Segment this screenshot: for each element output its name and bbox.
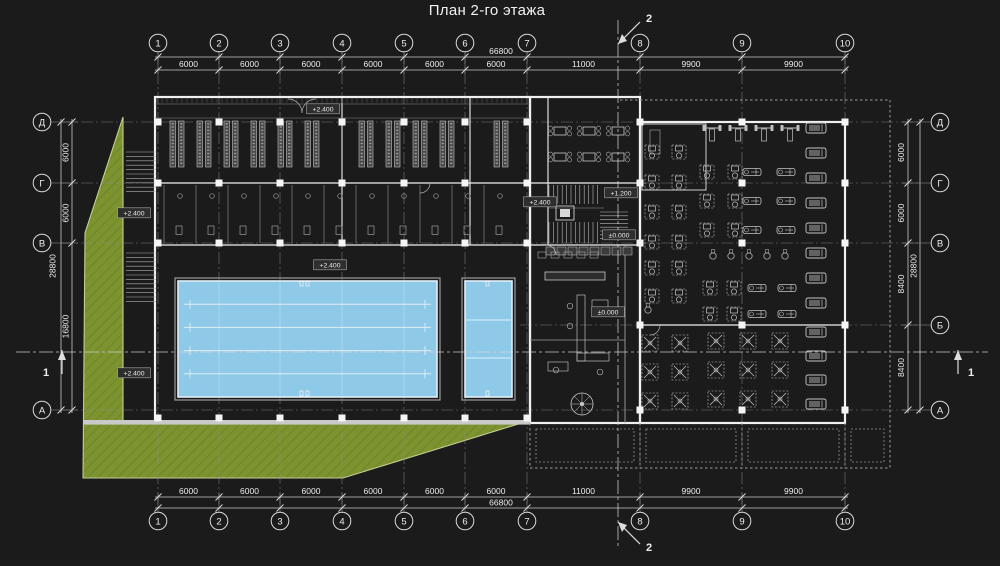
locker [590, 247, 599, 255]
equip [645, 205, 659, 219]
column [216, 240, 223, 247]
equip [676, 243, 681, 248]
equip [731, 315, 736, 320]
equip [755, 125, 758, 131]
column [277, 240, 284, 247]
column [524, 180, 531, 187]
equip [745, 228, 749, 232]
column [739, 119, 746, 126]
equip [809, 225, 820, 231]
grid-bubble-label: 9 [739, 517, 744, 528]
cafe-chair [577, 126, 581, 130]
equip [728, 165, 742, 179]
chair [567, 303, 573, 309]
grid-bubble-label: Г [39, 178, 44, 189]
cafe-table [583, 127, 595, 135]
terrace-slab [646, 429, 736, 462]
equip [649, 236, 656, 241]
column [842, 180, 849, 187]
elevation-label: ±0.000 [609, 233, 630, 240]
column [339, 240, 346, 247]
dim-text: 9900 [682, 59, 701, 69]
equip [649, 153, 654, 158]
equip [719, 125, 722, 131]
cafe-chair [567, 152, 571, 156]
equip [750, 286, 754, 290]
equip [809, 329, 820, 335]
grid-bubble-label: А [937, 405, 944, 416]
column [401, 415, 408, 422]
equip [732, 166, 739, 171]
reception-counter [545, 272, 605, 280]
equip [782, 253, 788, 259]
column [739, 407, 746, 414]
column [842, 240, 849, 247]
grid-bubble-label: 1 [155, 517, 160, 528]
elevation-label: ±0.000 [598, 310, 619, 317]
grid-bubble-label: 7 [524, 517, 529, 528]
cafe-chair [625, 126, 629, 130]
column [462, 240, 469, 247]
column [277, 180, 284, 187]
sink [370, 194, 375, 199]
dim-text-total: 66800 [489, 46, 513, 56]
dim-text-total: 66800 [489, 497, 513, 507]
dim-text: 8400 [896, 274, 906, 293]
dim-text: 6000 [896, 203, 906, 222]
equip [809, 275, 820, 281]
chair [553, 367, 559, 373]
door-swing [288, 99, 302, 113]
equip [771, 125, 774, 131]
column [155, 415, 162, 422]
equip [672, 289, 686, 303]
column [339, 180, 346, 187]
dim-text: 6000 [240, 59, 259, 69]
toilet [496, 226, 502, 235]
column [739, 240, 746, 247]
equip [672, 145, 686, 159]
dim-text: 9900 [682, 486, 701, 496]
elevation-label: +1.200 [611, 191, 632, 198]
equip [764, 253, 770, 259]
sink [178, 194, 183, 199]
grid-bubble-label: 6 [462, 39, 467, 50]
equip [649, 262, 656, 267]
equip [745, 170, 749, 174]
cafe-chair [567, 126, 571, 130]
equip [731, 308, 738, 313]
section-1-label: 1 [43, 367, 49, 379]
sink [242, 194, 247, 199]
desk [548, 362, 568, 371]
equip [676, 297, 681, 302]
equip [704, 195, 711, 200]
dim-text-total: 28800 [909, 254, 919, 278]
equip [780, 312, 784, 316]
locker [601, 247, 610, 255]
grid-bubble-label: А [39, 405, 46, 416]
dim-text: 6000 [179, 486, 198, 496]
equip [676, 183, 681, 188]
cafe-table [554, 153, 566, 161]
grid-bubble-label: 3 [277, 39, 282, 50]
cafe-chair [606, 158, 610, 162]
section-1-arrowhead [954, 350, 962, 360]
equip [649, 243, 654, 248]
cafe-chair [596, 126, 600, 130]
equip [728, 223, 742, 237]
stair-core-walls [530, 97, 640, 423]
grid-bubble-label: 4 [339, 517, 344, 528]
elevation-label: +2.400 [124, 211, 145, 218]
equip [788, 129, 793, 141]
main-pool [178, 281, 437, 397]
column [739, 322, 746, 329]
equip [672, 205, 686, 219]
canopy-outline [620, 100, 890, 468]
toilet [368, 226, 374, 235]
locker [623, 247, 632, 255]
column [524, 415, 531, 422]
drawing-title: План 2-го этажа [0, 2, 974, 19]
grid-bubble-label: 8 [637, 517, 642, 528]
column [401, 119, 408, 126]
toilet [304, 226, 310, 235]
column [637, 322, 644, 329]
gym-office [642, 124, 706, 190]
desk [577, 353, 609, 361]
cafe-chair [567, 158, 571, 162]
dim-text: 9900 [784, 59, 803, 69]
equip [809, 250, 820, 256]
equip [672, 175, 686, 189]
equip [809, 300, 820, 306]
floor-plan-canvas: 6000600060006000600060001100099009900668… [0, 0, 1000, 566]
equip [649, 290, 656, 295]
equip [732, 195, 739, 200]
elevator-car [560, 209, 570, 217]
kids-pool [465, 281, 512, 397]
cafe-chair [596, 132, 600, 136]
dim-text: 6000 [364, 59, 383, 69]
terrace-outline [530, 423, 890, 468]
equip [700, 165, 714, 179]
equip [809, 200, 820, 206]
column [637, 240, 644, 247]
equip [710, 129, 715, 141]
equip [781, 125, 784, 131]
equip [676, 290, 683, 295]
grid-bubble-label: 2 [216, 39, 221, 50]
column [462, 180, 469, 187]
cafe-chair [606, 132, 610, 136]
grid-bubble-label: Г [937, 178, 942, 189]
cafe-chair [625, 152, 629, 156]
equip [676, 146, 683, 151]
equip [649, 269, 654, 274]
equip [727, 281, 741, 295]
section-2-label: 2 [646, 542, 652, 554]
equip [676, 236, 683, 241]
grid-bubble-label: 5 [401, 39, 406, 50]
cafe-table [583, 153, 595, 161]
elevation-label: +2.400 [530, 200, 551, 207]
column [401, 180, 408, 187]
equip [732, 231, 737, 236]
equip [704, 224, 711, 229]
equip [645, 289, 659, 303]
sink [498, 194, 503, 199]
cafe-chair [567, 132, 571, 136]
locker [568, 247, 577, 255]
terrace-slab [536, 429, 634, 462]
column [637, 119, 644, 126]
dim-text: 6000 [61, 203, 71, 222]
elevation-label: +2.400 [313, 107, 334, 114]
dim-text-total: 28800 [48, 254, 58, 278]
column [277, 415, 284, 422]
equip [645, 307, 651, 313]
grid-bubble-label: Д [39, 117, 46, 128]
toilet [208, 226, 214, 235]
equip [676, 176, 683, 181]
cabinet [650, 130, 660, 154]
section-1-label: 1 [968, 367, 974, 379]
equip [700, 223, 714, 237]
equip [727, 307, 741, 321]
equip [649, 183, 654, 188]
equip [707, 289, 712, 294]
equip [645, 261, 659, 275]
chair [567, 323, 573, 329]
dim-text: 9900 [784, 486, 803, 496]
cafe-chair [548, 152, 552, 156]
equip [704, 202, 709, 207]
equip [704, 173, 709, 178]
dim-text: 6000 [425, 59, 444, 69]
equip [729, 125, 732, 131]
equip [809, 150, 820, 156]
column [637, 407, 644, 414]
grid-bubble-label: 5 [401, 517, 406, 528]
column [462, 415, 469, 422]
equip [809, 175, 820, 181]
dim-text: 11000 [572, 486, 595, 496]
elevation-label: +2.400 [320, 263, 341, 270]
column [155, 180, 162, 187]
sink [210, 194, 215, 199]
toilet [272, 226, 278, 235]
cafe-chair [548, 158, 552, 162]
terrace-slab [748, 429, 839, 462]
equip [707, 308, 714, 313]
column [524, 240, 531, 247]
grid-bubble-label: 3 [277, 517, 282, 528]
equip [645, 145, 659, 159]
grid-bubble-label: 4 [339, 39, 344, 50]
column [462, 119, 469, 126]
equip [745, 125, 748, 131]
equip [645, 175, 659, 189]
sink [434, 194, 439, 199]
door-swing [650, 325, 660, 335]
column [637, 180, 644, 187]
cafe-chair [548, 132, 552, 136]
equip [676, 206, 683, 211]
equip [732, 224, 739, 229]
elevation-label: +2.400 [124, 371, 145, 378]
spiral-stair-post [580, 402, 584, 406]
column [842, 407, 849, 414]
cafe-chair [596, 152, 600, 156]
grid-bubble-label: 6 [462, 517, 467, 528]
equip [797, 125, 800, 131]
cafe-chair [577, 132, 581, 136]
equip [809, 125, 820, 131]
cafe-table [554, 127, 566, 135]
section-2-arrowhead [618, 522, 627, 532]
section-2-arrowhead [618, 34, 627, 44]
equip [649, 176, 656, 181]
grid-bubble-label: Б [937, 320, 943, 331]
toilet [176, 226, 182, 235]
dim-text: 6000 [302, 59, 321, 69]
column [216, 415, 223, 422]
grid-bubble-label: 1 [155, 39, 160, 50]
equip [745, 199, 749, 203]
dim-text: 6000 [487, 59, 506, 69]
dim-text: 11000 [572, 59, 595, 69]
column [524, 119, 531, 126]
grid-bubble-label: 10 [840, 39, 851, 50]
section-1-arrowhead [58, 350, 66, 360]
dim-text: 6000 [364, 486, 383, 496]
column [401, 240, 408, 247]
grid-bubble-label: В [39, 238, 45, 249]
toilet [240, 226, 246, 235]
dim-text: 6000 [425, 486, 444, 496]
column [277, 119, 284, 126]
grid-bubble-label: 7 [524, 39, 529, 50]
equip [762, 129, 767, 141]
grid-bubble-label: 9 [739, 39, 744, 50]
grid-bubble-label: 2 [216, 517, 221, 528]
column [216, 180, 223, 187]
equip [703, 307, 717, 321]
cafe-chair [625, 158, 629, 162]
terrace-slab [851, 429, 884, 462]
locker [612, 247, 621, 255]
dim-text: 6000 [61, 143, 71, 162]
floor-plan-sheet: 6000600060006000600060001100099009900668… [0, 0, 1000, 566]
column [216, 119, 223, 126]
equip [732, 173, 737, 178]
equip [728, 253, 734, 259]
locker [557, 247, 566, 255]
equip [704, 231, 709, 236]
column [339, 119, 346, 126]
cafe-chair [577, 158, 581, 162]
column [842, 119, 849, 126]
equip [732, 202, 737, 207]
sink [274, 194, 279, 199]
cafe-chair [577, 152, 581, 156]
dim-text: 8400 [896, 358, 906, 377]
dim-text: 16800 [61, 314, 71, 338]
equip [645, 235, 659, 249]
equip [704, 166, 711, 171]
equip [750, 312, 754, 316]
dim-text: 6000 [302, 486, 321, 496]
dim-text: 6000 [896, 143, 906, 162]
equip [779, 199, 783, 203]
equip [676, 153, 681, 158]
equip [728, 194, 742, 208]
column [155, 240, 162, 247]
cafe-chair [625, 132, 629, 136]
dim-text: 6000 [240, 486, 259, 496]
grid-bubble-label: Д [937, 117, 944, 128]
equip [700, 194, 714, 208]
cafe-chair [548, 126, 552, 130]
grid-bubble-label: В [937, 238, 943, 249]
equip [703, 125, 706, 131]
equip [809, 353, 820, 359]
equip [676, 213, 681, 218]
equip [649, 297, 654, 302]
equip [672, 235, 686, 249]
column [842, 322, 849, 329]
equip [707, 282, 714, 287]
equip [746, 253, 752, 259]
toilet [336, 226, 342, 235]
equip [676, 269, 681, 274]
chair [597, 369, 603, 375]
dim-text: 6000 [179, 59, 198, 69]
equip [731, 289, 736, 294]
cafe-chair [596, 158, 600, 162]
equip [676, 262, 683, 267]
column [339, 415, 346, 422]
equip [672, 261, 686, 275]
equip [703, 281, 717, 295]
toilet [400, 226, 406, 235]
equip [779, 228, 783, 232]
sink [306, 194, 311, 199]
toilet [432, 226, 438, 235]
equip [649, 206, 656, 211]
door-swing [420, 183, 430, 193]
dim-text: 6000 [487, 486, 506, 496]
grid-bubble-label: 10 [840, 517, 851, 528]
equip [736, 129, 741, 141]
column [155, 119, 162, 126]
desk [577, 295, 585, 361]
column [739, 180, 746, 187]
equip [649, 146, 656, 151]
equip [731, 282, 738, 287]
equip [809, 401, 820, 407]
cafe-chair [606, 152, 610, 156]
equip [809, 377, 820, 383]
seat [538, 252, 546, 258]
cafe-chair [606, 126, 610, 130]
equip [780, 286, 784, 290]
locker [579, 247, 588, 255]
equip [707, 315, 712, 320]
grid-bubble-label: 8 [637, 39, 642, 50]
